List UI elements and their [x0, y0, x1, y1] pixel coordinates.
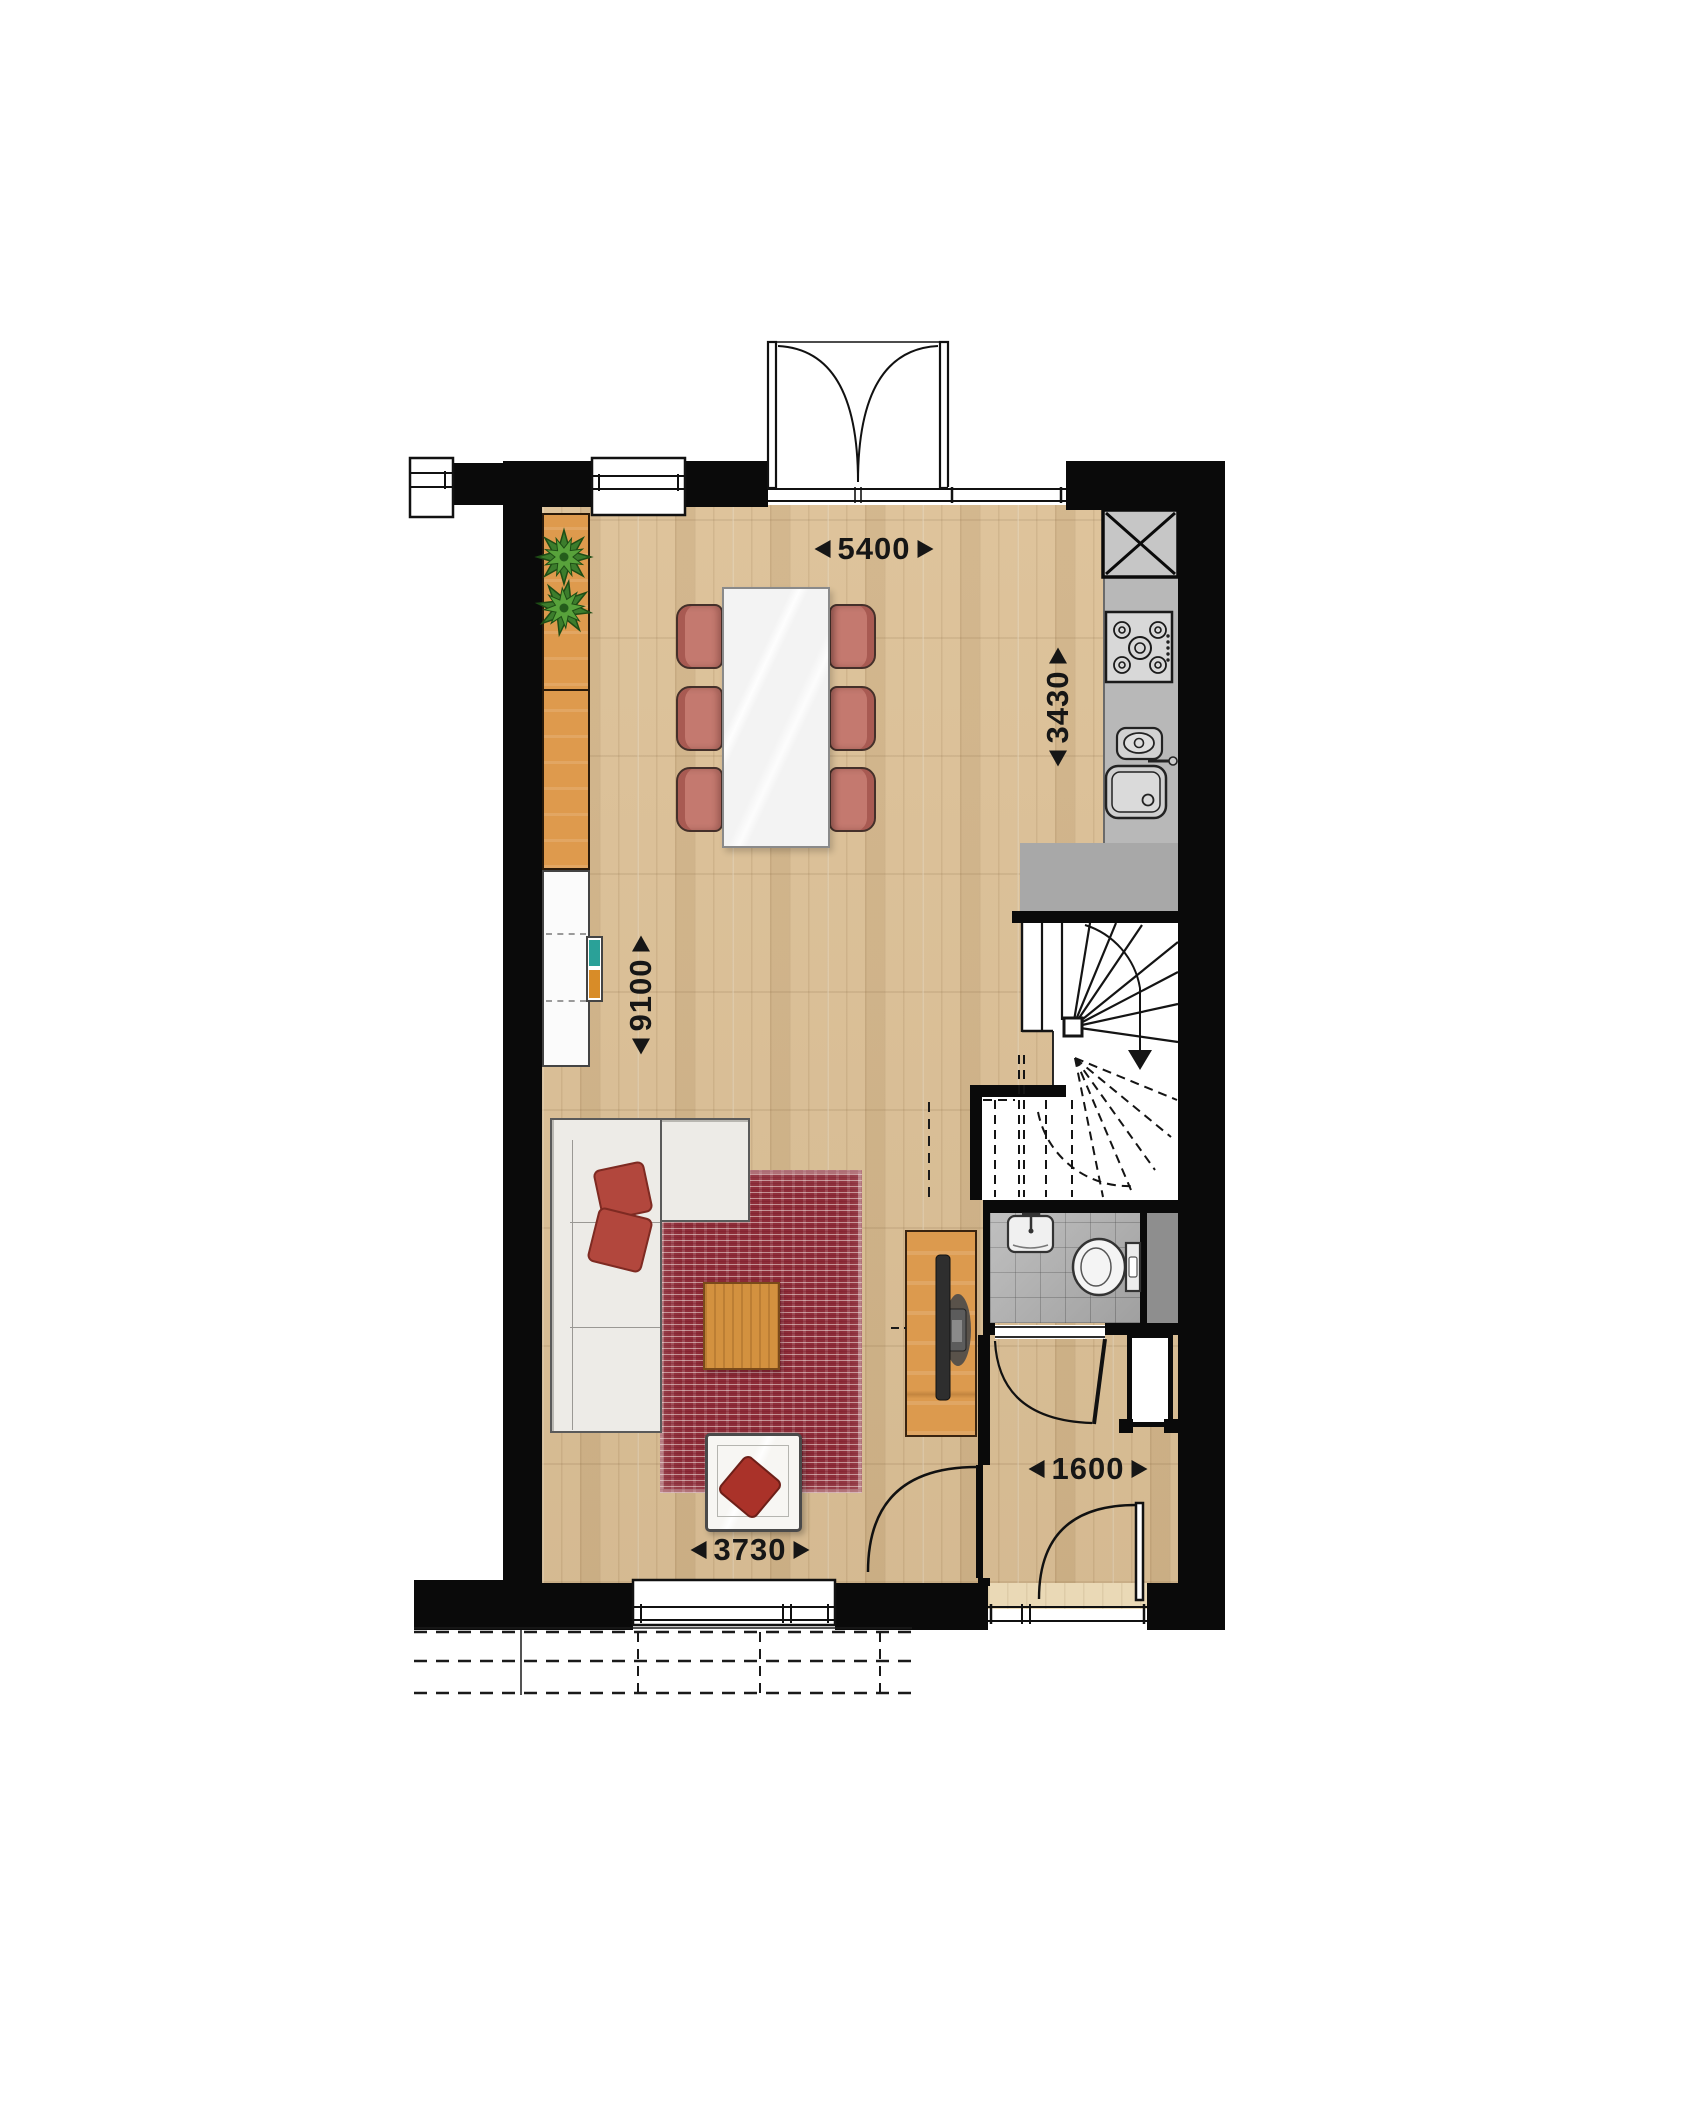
- living-room-door: [868, 1465, 983, 1578]
- dim-right-depth: 3430: [1040, 648, 1076, 767]
- arrow-up-icon: [632, 936, 650, 952]
- front-door: [988, 1503, 1147, 1624]
- dim-value: 9100: [623, 959, 659, 1032]
- plan-linework: [0, 0, 1685, 2121]
- staircase: [983, 923, 1178, 1197]
- arrow-left-icon: [815, 540, 831, 558]
- arrow-right-icon: [1131, 1460, 1147, 1478]
- plant-icon: [537, 530, 591, 584]
- wash-basin-icon: [1008, 1213, 1053, 1252]
- dim-bottom-width: 3730: [691, 1532, 810, 1568]
- dim-top-width: 5400: [815, 531, 934, 567]
- dim-value: 5400: [838, 531, 911, 567]
- window-bottom: [633, 1580, 835, 1625]
- dim-value: 3430: [1040, 671, 1076, 744]
- arrow-right-icon: [793, 1541, 809, 1559]
- projection-dashes: [891, 1102, 929, 1328]
- terrace-outline: [414, 1628, 912, 1695]
- kitchen-sink-icon: [1106, 728, 1177, 818]
- floor-plan: 5400 3430 9100 3730 1600: [0, 0, 1685, 2121]
- hob-icon: [1106, 612, 1172, 682]
- dim-value: 1600: [1052, 1451, 1125, 1487]
- toilet-icon: [1073, 1239, 1140, 1295]
- arrow-right-icon: [917, 540, 933, 558]
- wc-door: [995, 1325, 1105, 1424]
- arrow-down-icon: [1049, 750, 1067, 766]
- sidelight-glazing: [948, 487, 1066, 504]
- arrow-left-icon: [1029, 1460, 1045, 1478]
- arrow-down-icon: [632, 1038, 650, 1054]
- arrow-up-icon: [1049, 648, 1067, 664]
- dim-value: 3730: [714, 1532, 787, 1568]
- dim-hall-width: 1600: [1029, 1451, 1148, 1487]
- french-doors: [768, 342, 948, 505]
- dim-left-length: 9100: [623, 936, 659, 1055]
- tv-icon: [936, 1255, 971, 1400]
- arrow-left-icon: [691, 1541, 707, 1559]
- window-top: [592, 458, 685, 515]
- window-neighbor: [410, 458, 453, 517]
- tall-unit-icon: [1103, 510, 1178, 577]
